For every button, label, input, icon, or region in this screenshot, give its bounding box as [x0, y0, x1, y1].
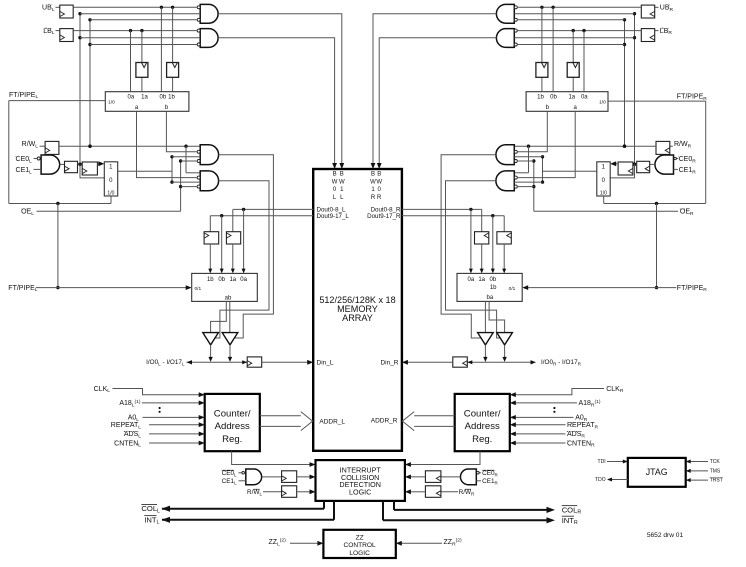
- svg-text:W: W: [332, 179, 338, 185]
- svg-text:ab: ab: [225, 296, 232, 302]
- svg-text:JTAG: JTAG: [646, 467, 668, 477]
- svg-text:R: R: [371, 195, 376, 201]
- svg-text:1b: 1b: [168, 95, 175, 101]
- svg-text:1/0: 1/0: [107, 190, 114, 196]
- svg-text:1b: 1b: [537, 95, 544, 101]
- svg-text:0b: 0b: [218, 277, 225, 283]
- svg-text:1/0: 1/0: [108, 100, 115, 106]
- svg-text:LOGIC: LOGIC: [349, 550, 370, 557]
- svg-text:ADDR_R: ADDR_R: [371, 418, 398, 425]
- svg-text:TDO: TDO: [595, 477, 606, 483]
- svg-text:Reg.: Reg.: [222, 434, 242, 445]
- svg-text:0a: 0a: [128, 95, 135, 101]
- svg-text:0b: 0b: [160, 95, 167, 101]
- svg-text:0a: 0a: [240, 277, 247, 283]
- svg-text:Counter/: Counter/: [214, 409, 251, 420]
- svg-text:I/O0R - I/O17R: I/O0R - I/O17R: [541, 359, 582, 366]
- svg-text:Dout9-17_R: Dout9-17_R: [367, 213, 401, 220]
- svg-text:CONTROL: CONTROL: [343, 542, 376, 549]
- svg-text:Counter/: Counter/: [464, 409, 501, 420]
- svg-text:0b: 0b: [489, 277, 496, 283]
- svg-text:ADDR_L: ADDR_L: [319, 419, 345, 426]
- svg-text:I/O0L - I/O17L: I/O0L - I/O17L: [146, 359, 185, 366]
- svg-text:1b: 1b: [490, 285, 497, 291]
- svg-text:0b: 0b: [550, 95, 557, 101]
- svg-text:5652 drw 01: 5652 drw 01: [647, 532, 684, 539]
- svg-text:Dout9-17_L: Dout9-17_L: [317, 213, 350, 220]
- svg-text:1/0: 1/0: [599, 100, 606, 106]
- svg-text:B: B: [377, 171, 381, 177]
- svg-text:TRST: TRST: [710, 478, 723, 484]
- svg-text:R: R: [377, 195, 382, 201]
- svg-text:TMS: TMS: [710, 469, 721, 475]
- svg-text:W: W: [370, 179, 376, 185]
- svg-text:0a: 0a: [581, 95, 588, 101]
- svg-text:W: W: [376, 179, 382, 185]
- svg-text:TCK: TCK: [710, 459, 721, 465]
- svg-text:1b: 1b: [207, 277, 214, 283]
- svg-text:Address: Address: [465, 421, 500, 432]
- svg-text:B: B: [340, 171, 344, 177]
- svg-text:Din_L: Din_L: [317, 360, 334, 367]
- svg-text:Din_R: Din_R: [380, 360, 398, 367]
- svg-text:B: B: [333, 171, 337, 177]
- svg-text:Address: Address: [215, 421, 250, 432]
- svg-text:1a: 1a: [141, 95, 148, 101]
- svg-text:1a: 1a: [478, 277, 485, 283]
- svg-text:ZZ: ZZ: [356, 535, 364, 542]
- svg-text:0/1: 0/1: [509, 286, 516, 292]
- svg-text:1a: 1a: [568, 95, 575, 101]
- svg-text:Reg.: Reg.: [472, 434, 492, 445]
- svg-text:ARRAY: ARRAY: [342, 313, 373, 323]
- svg-text:W: W: [339, 179, 345, 185]
- svg-text:0/1: 0/1: [194, 286, 201, 292]
- svg-text:1a: 1a: [229, 277, 236, 283]
- svg-text:1/0: 1/0: [600, 190, 607, 196]
- svg-text:TDI: TDI: [598, 459, 606, 465]
- svg-text:ba: ba: [487, 295, 494, 301]
- svg-text:B: B: [371, 171, 375, 177]
- svg-text:0a: 0a: [468, 277, 475, 283]
- svg-text:LOGIC: LOGIC: [349, 488, 371, 497]
